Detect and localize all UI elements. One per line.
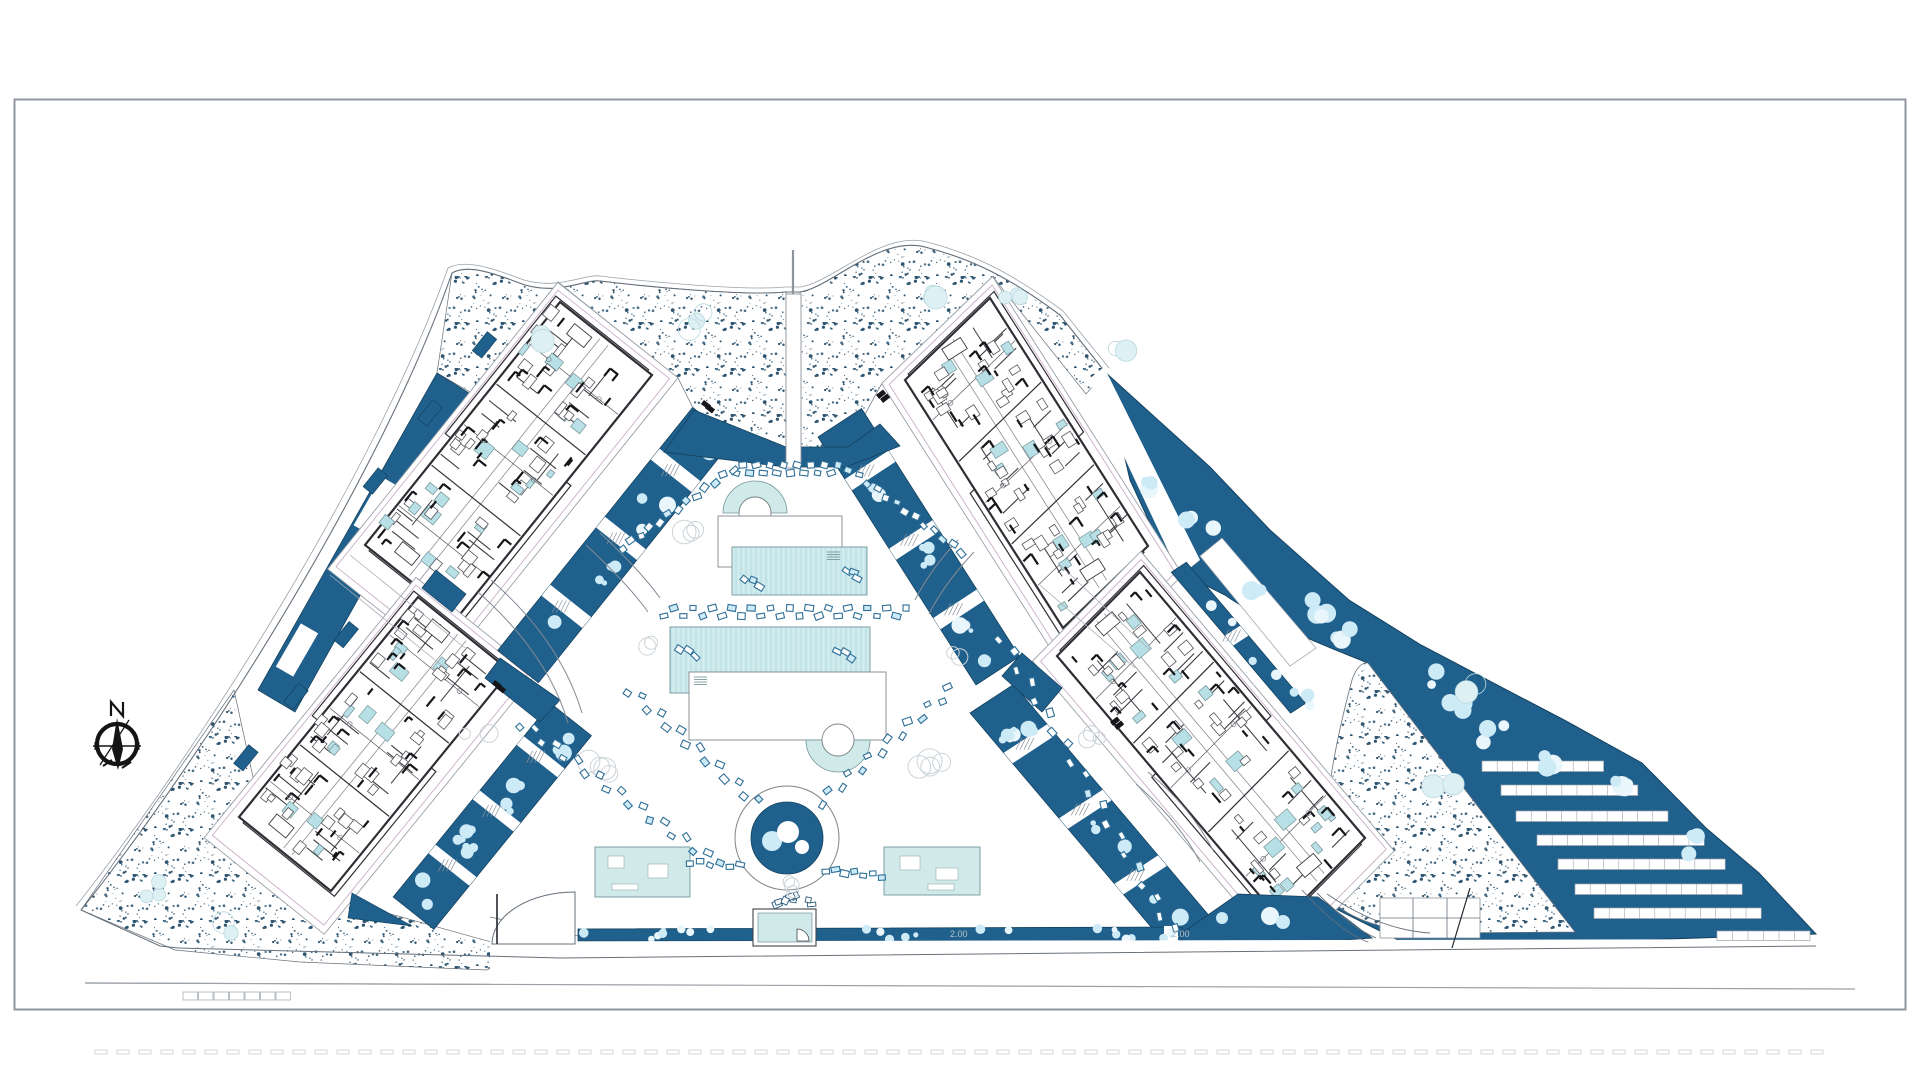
svg-text:2.00: 2.00	[1172, 929, 1190, 939]
svg-text:2.00: 2.00	[950, 929, 968, 939]
